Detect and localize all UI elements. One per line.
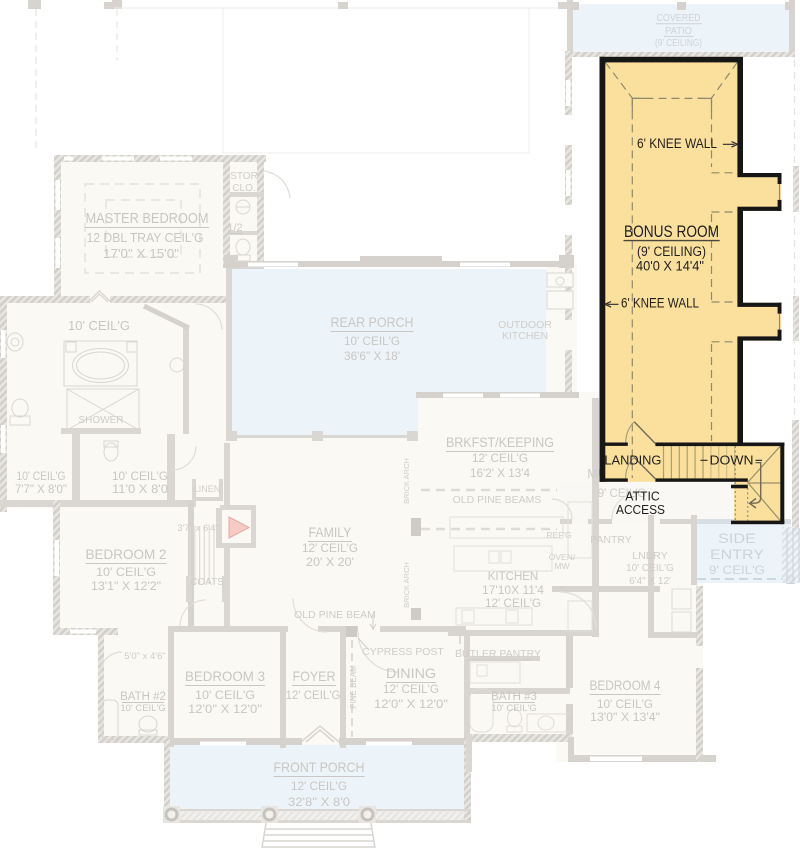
svg-text:DINING: DINING xyxy=(386,665,436,681)
svg-text:BONUS ROOM: BONUS ROOM xyxy=(624,223,719,241)
svg-text:(9' CEILING): (9' CEILING) xyxy=(637,244,706,259)
svg-text:MW: MW xyxy=(554,561,569,571)
svg-text:12'0" X 12'0": 12'0" X 12'0" xyxy=(374,697,448,711)
svg-text:12' CEIL'G: 12' CEIL'G xyxy=(383,682,439,696)
svg-text:BEDROOM 4: BEDROOM 4 xyxy=(590,677,661,693)
svg-text:ENTRY: ENTRY xyxy=(710,546,765,562)
svg-text:FOYER: FOYER xyxy=(293,668,336,684)
svg-text:BATH #2: BATH #2 xyxy=(120,691,166,703)
svg-text:BRICK ARCH: BRICK ARCH xyxy=(402,562,411,608)
svg-text:(9' CEILING): (9' CEILING) xyxy=(655,38,702,49)
svg-text:BUTLER PANTRY: BUTLER PANTRY xyxy=(455,648,541,660)
svg-text:10' CEIL'G: 10' CEIL'G xyxy=(491,703,536,714)
svg-text:10' CEIL'G: 10' CEIL'G xyxy=(626,563,674,574)
svg-text:SHOWER: SHOWER xyxy=(79,415,124,426)
svg-text:REAR PORCH: REAR PORCH xyxy=(331,314,414,330)
svg-text:11'0 X 8'0: 11'0 X 8'0 xyxy=(112,484,168,496)
svg-text:CYPRESS POST: CYPRESS POST xyxy=(362,646,444,658)
svg-text:7'7" X 8'0": 7'7" X 8'0" xyxy=(15,484,67,496)
svg-text:17'10X 11'4: 17'10X 11'4 xyxy=(482,583,544,597)
svg-text:ACCESS: ACCESS xyxy=(616,502,665,517)
svg-text:COVERED: COVERED xyxy=(657,13,701,24)
svg-text:12' CEIL'G: 12' CEIL'G xyxy=(472,451,528,465)
svg-text:10' CEIL'G: 10' CEIL'G xyxy=(597,697,653,711)
svg-text:12'0" X 12'0": 12'0" X 12'0" xyxy=(188,702,262,716)
svg-text:PINE BEAM: PINE BEAM xyxy=(349,665,358,709)
svg-text:FAMILY: FAMILY xyxy=(309,524,353,540)
svg-text:6' KNEE WALL: 6' KNEE WALL xyxy=(637,136,717,151)
svg-text:BEDROOM 3: BEDROOM 3 xyxy=(185,668,265,684)
svg-text:OLD PINE BEAMS: OLD PINE BEAMS xyxy=(453,494,542,506)
svg-text:COATS: COATS xyxy=(190,577,224,588)
svg-text:20' X 20': 20' X 20' xyxy=(306,555,354,569)
svg-text:STOR: STOR xyxy=(230,171,258,182)
svg-text:10' CEIL'G: 10' CEIL'G xyxy=(17,471,66,483)
svg-text:17'0" X 15'0": 17'0" X 15'0" xyxy=(103,247,179,261)
svg-text:10' CEIL'G: 10' CEIL'G xyxy=(68,319,130,333)
svg-text:KITCHEN: KITCHEN xyxy=(502,330,548,342)
svg-text:36'6" X 18': 36'6" X 18' xyxy=(344,349,400,363)
svg-text:6'4" X 12': 6'4" X 12' xyxy=(629,576,671,587)
svg-text:DOWN: DOWN xyxy=(710,452,754,467)
svg-text:CLO.: CLO. xyxy=(232,183,255,194)
svg-text:LINEN: LINEN xyxy=(194,484,221,494)
svg-text:12' CEIL'G: 12' CEIL'G xyxy=(485,596,541,610)
svg-text:10' CEIL'G: 10' CEIL'G xyxy=(344,334,400,348)
svg-text:FRONT PORCH: FRONT PORCH xyxy=(274,759,365,775)
svg-text:PATIO: PATIO xyxy=(665,26,692,37)
svg-text:12' CEIL'G: 12' CEIL'G xyxy=(291,779,347,793)
svg-text:12 DBL TRAY CEIL'G: 12 DBL TRAY CEIL'G xyxy=(87,231,204,245)
svg-text:LNDRY: LNDRY xyxy=(632,550,667,562)
svg-text:BEDROOM 2: BEDROOM 2 xyxy=(86,546,167,562)
svg-text:5'0" x 4'6": 5'0" x 4'6" xyxy=(124,651,166,662)
svg-text:REF'G: REF'G xyxy=(546,530,571,540)
svg-text:BRICK ARCH: BRICK ARCH xyxy=(402,458,411,504)
svg-text:10' CEIL'G: 10' CEIL'G xyxy=(112,471,168,483)
svg-text:KITCHEN: KITCHEN xyxy=(488,571,538,583)
svg-text:10' CEIL'G: 10' CEIL'G xyxy=(96,565,156,579)
svg-text:BRKFST/KEEPING: BRKFST/KEEPING xyxy=(446,434,554,450)
svg-text:3'7" x 6'4": 3'7" x 6'4" xyxy=(177,523,219,534)
svg-text:32'8" X 8'0: 32'8" X 8'0 xyxy=(288,795,350,809)
svg-text:9' CEIL'G: 9' CEIL'G xyxy=(709,563,765,577)
svg-text:13'0" X 13'4": 13'0" X 13'4" xyxy=(590,710,660,724)
svg-text:16'2' X 13'4: 16'2' X 13'4 xyxy=(470,466,530,480)
svg-text:40'0 X 14'4": 40'0 X 14'4" xyxy=(636,258,704,273)
svg-text:10' CEIL'G: 10' CEIL'G xyxy=(195,688,255,702)
svg-text:10' CEIL'G: 10' CEIL'G xyxy=(120,703,165,714)
svg-text:BATH #3: BATH #3 xyxy=(491,691,537,703)
svg-text:PANTRY: PANTRY xyxy=(590,534,632,546)
svg-text:13'1" X 12'2": 13'1" X 12'2" xyxy=(91,579,161,593)
svg-text:12' CEIL'G: 12' CEIL'G xyxy=(286,688,341,702)
svg-text:OLD PINE BEAM: OLD PINE BEAM xyxy=(294,609,376,621)
svg-text:6' KNEE WALL: 6' KNEE WALL xyxy=(621,296,699,311)
svg-text:1/2: 1/2 xyxy=(227,222,242,234)
svg-text:LANDING: LANDING xyxy=(604,452,661,467)
svg-text:MASTER BEDROOM: MASTER BEDROOM xyxy=(86,210,209,227)
svg-text:12' CEIL'G: 12' CEIL'G xyxy=(302,541,358,555)
